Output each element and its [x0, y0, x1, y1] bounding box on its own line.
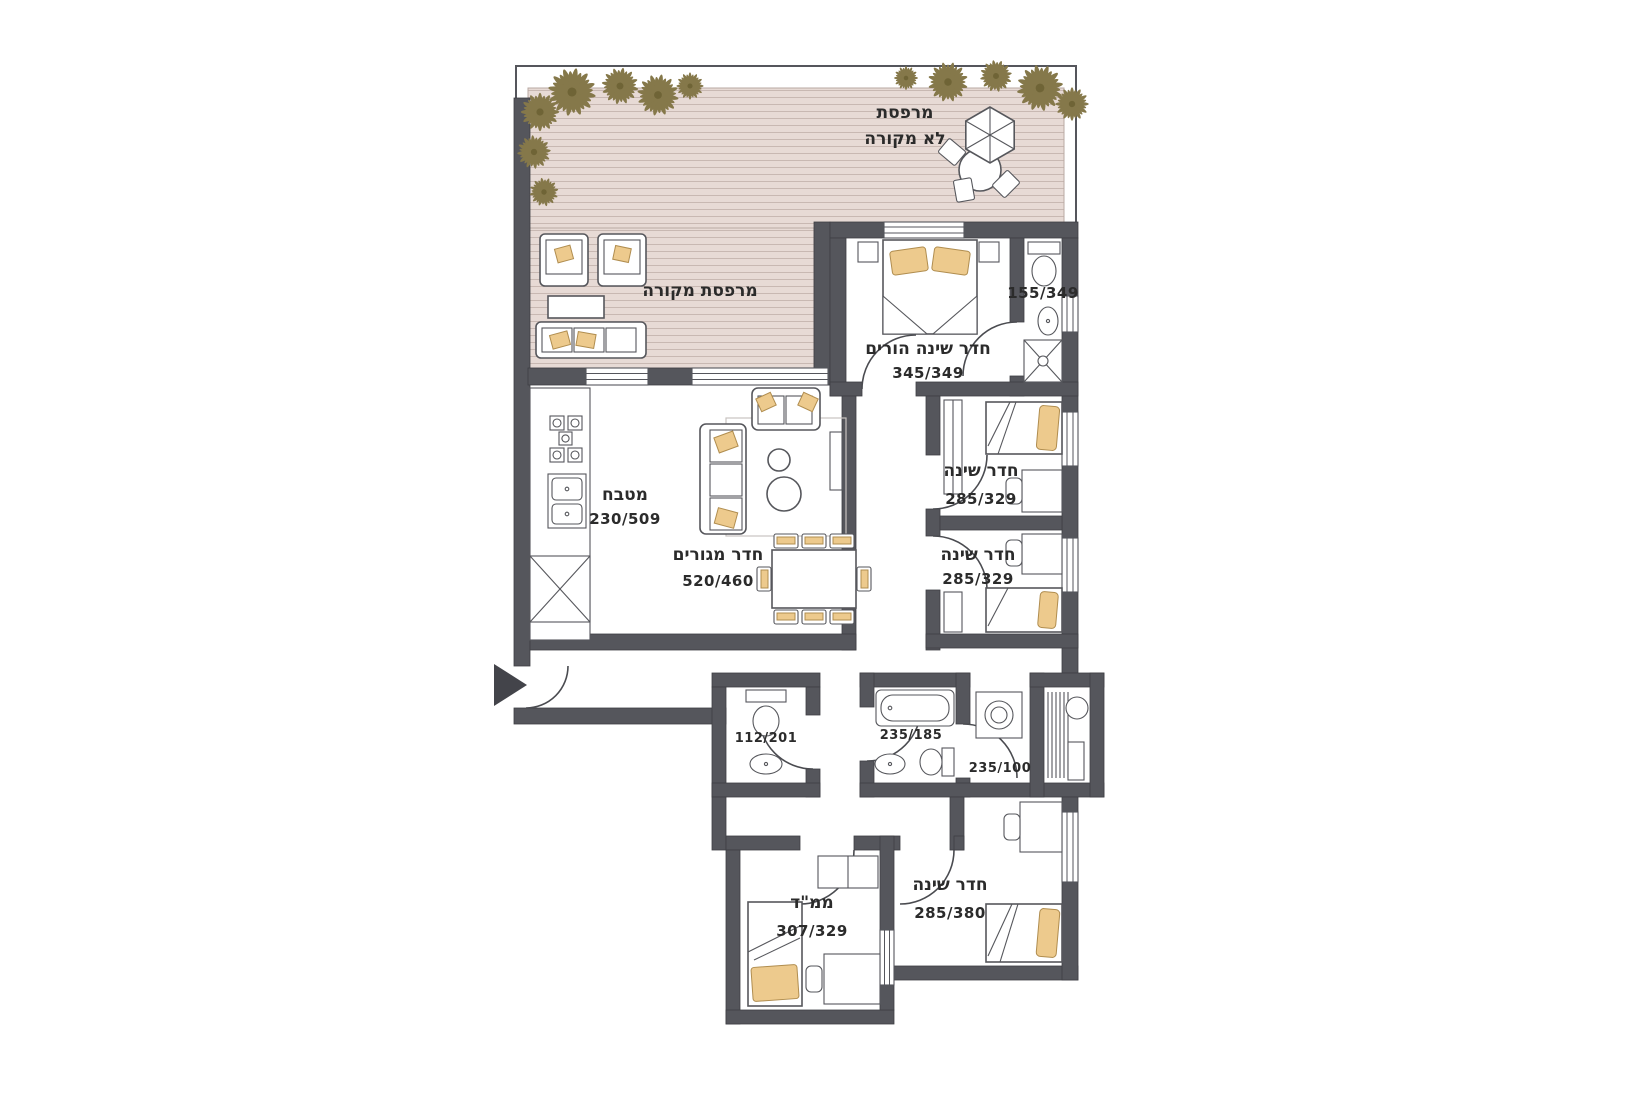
washing-machine-icon: [976, 692, 1022, 738]
master-bath-dims: 155/349: [1007, 284, 1079, 302]
double-bed-icon: [883, 240, 977, 334]
wall-segment: [926, 634, 1078, 648]
wall-segment: [956, 673, 970, 724]
bedroom2-label: חדר שינה: [940, 545, 1015, 565]
window: [880, 930, 894, 985]
living-room-label: חדר מגורים: [673, 545, 764, 565]
master-bedroom-label: חדר שינה הורים: [865, 339, 991, 359]
wall-segment: [814, 222, 830, 385]
nightstand-icon: [858, 242, 878, 262]
wall-segment: [806, 687, 820, 715]
wall-segment: [712, 797, 726, 850]
safe-room-dims: 307/329: [776, 922, 848, 940]
open-terrace-label: מרפסת: [877, 103, 934, 123]
entry-door-arc: [526, 666, 568, 708]
wall-segment: [726, 850, 740, 1024]
drying-rack-icon: [1048, 692, 1068, 778]
coffee-table-icon: [767, 477, 801, 511]
sink-icon: [750, 754, 782, 774]
wall-segment: [830, 238, 846, 396]
open-terrace-label-2: לא מקורה: [864, 129, 945, 149]
wall-segment: [880, 966, 1078, 980]
wall-segment: [940, 516, 1062, 530]
wall-segment: [1010, 238, 1024, 322]
wall-segment: [514, 98, 530, 666]
safe-room-label: ממ"ד: [790, 893, 833, 913]
bedroom2-dims: 285/329: [942, 570, 1014, 588]
single-bed-icon: [748, 902, 802, 1006]
kitchen-sink-icon: [548, 474, 586, 528]
boiler-icon: [1066, 697, 1088, 719]
toilet-icon: [920, 748, 954, 776]
window: [692, 368, 828, 385]
bedroom3-label: חדר שינה: [912, 875, 987, 895]
wall-segment: [830, 382, 862, 396]
bathtub-icon: [876, 690, 954, 726]
wardrobe-icon: [944, 592, 962, 632]
toilet-icon: [746, 690, 786, 736]
sofa-icon: [700, 424, 746, 534]
wall-segment: [726, 836, 800, 850]
bedroom3-dims: 285/380: [914, 904, 986, 922]
sink-icon: [875, 754, 905, 774]
side-table-icon: [768, 449, 790, 471]
chair-icon: [806, 966, 822, 992]
side-table-icon: [548, 296, 604, 318]
sofa-icon: [536, 322, 646, 358]
bedroom1-dims: 285/329: [945, 490, 1017, 508]
wall-segment: [1090, 673, 1104, 797]
wall-segment: [954, 836, 964, 850]
covered-terrace-label: מרפסת מקורה: [642, 281, 757, 301]
desk-icon: [1020, 802, 1062, 852]
window: [1062, 538, 1078, 592]
laundry-fixtures: [976, 692, 1022, 738]
bedroom1-label: חדר שינה: [943, 461, 1018, 481]
single-bed-icon: [986, 588, 1062, 632]
wall-segment: [916, 382, 1078, 396]
dining-table-icon: [757, 534, 871, 624]
wall-segment: [514, 708, 726, 724]
sink-icon: [1038, 307, 1058, 335]
kitchen-dims: 230/509: [589, 510, 661, 528]
bathroom-dims: 235/185: [880, 728, 943, 743]
entrance-arrow-icon: [494, 664, 527, 706]
single-bed-icon: [986, 904, 1062, 962]
kitchen-fixtures: [530, 388, 590, 640]
wall-segment: [726, 1010, 894, 1024]
floor-plan-drawing: מרפסת לא מקורה מרפסת מקורה חדר שינה הורי…: [0, 0, 1632, 1120]
wall-segment: [712, 673, 820, 687]
laundry-dims: 235/100: [969, 761, 1032, 776]
loveseat-icon: [752, 388, 820, 430]
utility-cabinet-icon: [1068, 742, 1084, 780]
floor-plan-canvas: מרפסת לא מקורה מרפסת מקורה חדר שינה הורי…: [0, 0, 1632, 1120]
plant-icon: [894, 66, 918, 90]
armchair-icon: [598, 234, 646, 286]
living-room-dims: 520/460: [682, 572, 754, 590]
kitchen-label: מטבח: [602, 485, 648, 505]
window: [586, 368, 648, 385]
window: [884, 222, 964, 238]
wall-segment: [1030, 673, 1044, 797]
window: [1062, 812, 1078, 882]
shower-icon: [1024, 340, 1062, 382]
wall-segment: [860, 783, 1104, 797]
master-bedroom-dims: 345/349: [892, 364, 964, 382]
wall-segment: [860, 673, 874, 707]
wall-segment: [712, 687, 726, 797]
wall-segment: [926, 396, 940, 455]
desk-icon: [824, 954, 880, 1004]
cabinet-icon: [530, 556, 590, 622]
desk-icon: [1022, 470, 1062, 512]
bedroom3-furniture: [986, 802, 1062, 962]
master-bath-fixtures: [1024, 242, 1062, 382]
service-balcony-fixtures: [1048, 692, 1088, 780]
nightstand-icon: [979, 242, 999, 262]
toilet-icon: [1028, 242, 1060, 286]
master-bedroom-furniture: [858, 240, 999, 334]
wall-segment: [712, 783, 820, 797]
single-bed-icon: [986, 402, 1062, 454]
chair-icon: [1004, 814, 1020, 840]
wall-segment: [860, 673, 970, 687]
armchair-icon: [540, 234, 588, 286]
desk-icon: [1022, 534, 1062, 574]
wall-segment: [926, 509, 940, 536]
tv-unit-icon: [830, 432, 842, 490]
window: [1062, 412, 1078, 466]
wc-dims: 112/201: [735, 731, 798, 746]
